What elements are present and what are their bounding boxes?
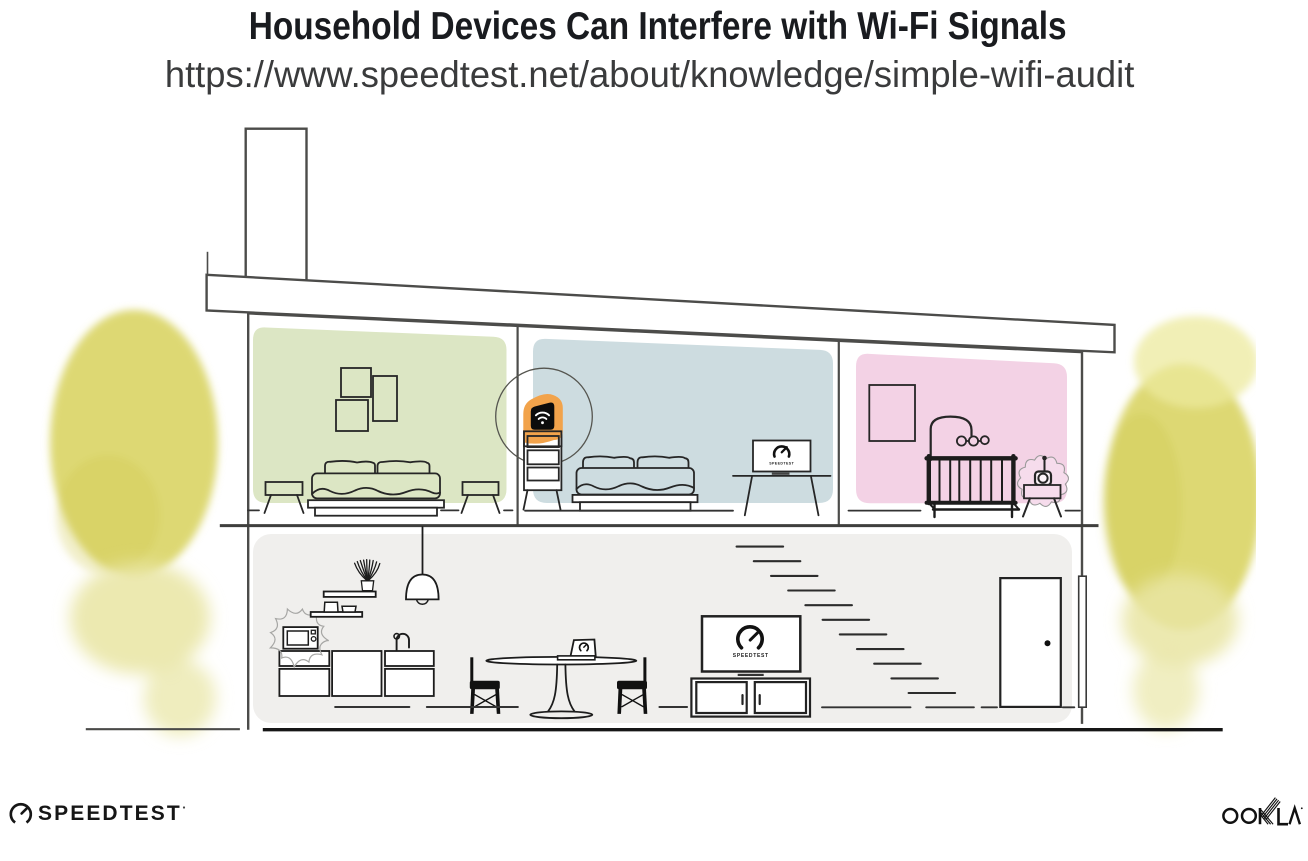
svg-text:SPEEDTEST: SPEEDTEST [733, 653, 769, 659]
svg-text:SPEEDTEST: SPEEDTEST [769, 462, 794, 466]
